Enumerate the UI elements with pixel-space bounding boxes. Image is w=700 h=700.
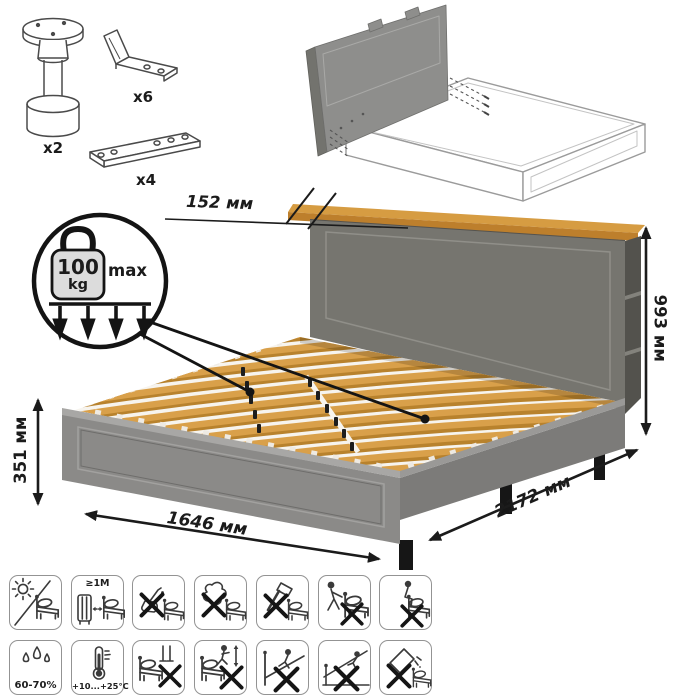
x-icon xyxy=(204,595,225,616)
bed-icon xyxy=(35,595,58,619)
distance-label: ≥1М xyxy=(72,578,123,589)
load-value-label: 100 xyxy=(54,257,102,277)
shelf-depth-label: 152 мм xyxy=(186,194,254,213)
icon-no-tipping-panels xyxy=(379,640,432,695)
icon-no-hammering xyxy=(256,575,309,630)
icon-no-sliding xyxy=(318,640,371,695)
hardware-bracket-drawing xyxy=(104,30,177,81)
icon-temperature-range: +10...+25°C xyxy=(71,640,124,695)
icon-no-standing-on-bed xyxy=(132,640,185,695)
bed-icon xyxy=(102,596,124,619)
x-icon xyxy=(402,606,422,626)
frame-height-label: 351 мм xyxy=(13,407,30,493)
icon-no-dragging xyxy=(318,575,371,630)
leg-count-label: x2 xyxy=(38,141,68,156)
bed-icon xyxy=(138,656,162,681)
x-icon xyxy=(276,669,298,691)
temperature-label: +10...+25°C xyxy=(72,681,123,691)
incline-icon xyxy=(324,651,367,677)
exploded-assembly-drawing xyxy=(306,5,645,201)
bed-icon xyxy=(287,599,308,620)
icon-no-liquids xyxy=(132,575,185,630)
plate-count-label: x4 xyxy=(131,173,161,188)
bracket-count-label: x6 xyxy=(128,90,158,105)
hardware-leg-drawing xyxy=(23,19,83,137)
x-icon xyxy=(160,666,180,686)
icon-no-climbing xyxy=(256,640,309,695)
product-sheet: x2 x6 x4 152 мм 993 мм 351 мм 1646 мм 21… xyxy=(0,0,700,700)
icon-no-aggressive-cleaning xyxy=(194,575,247,630)
bed-icon xyxy=(163,599,184,620)
spill-drops-icon xyxy=(415,657,421,668)
slash-icon xyxy=(15,581,50,625)
x-icon xyxy=(389,666,410,687)
x-icon xyxy=(336,668,358,690)
icon-no-jumping-on-bed xyxy=(194,640,247,695)
humidity-label: 60-70% xyxy=(10,680,61,691)
bed-icon xyxy=(225,599,246,620)
stain-icon xyxy=(203,582,226,604)
icon-no-sitting-on-edge xyxy=(379,575,432,630)
feet-icon xyxy=(163,646,170,660)
total-height-label: 993 мм xyxy=(651,285,668,371)
bed-icon xyxy=(412,668,431,688)
bed-icon xyxy=(343,592,368,618)
icon-humidity-range: 60-70% xyxy=(9,640,62,695)
thermometer-icon xyxy=(94,647,111,679)
person-jumping-icon xyxy=(217,645,229,665)
load-unit-label: kg xyxy=(54,278,102,293)
person-icon xyxy=(328,582,342,610)
sun-icon xyxy=(13,579,34,600)
icon-keep-distance-from-heat: ≥1М xyxy=(71,575,124,630)
radiator-icon xyxy=(78,595,91,624)
hardware-plate-drawing xyxy=(90,133,200,167)
icon-avoid-direct-sunlight xyxy=(9,575,62,630)
water-drops-icon xyxy=(23,647,49,662)
load-max-label: max xyxy=(108,263,147,280)
